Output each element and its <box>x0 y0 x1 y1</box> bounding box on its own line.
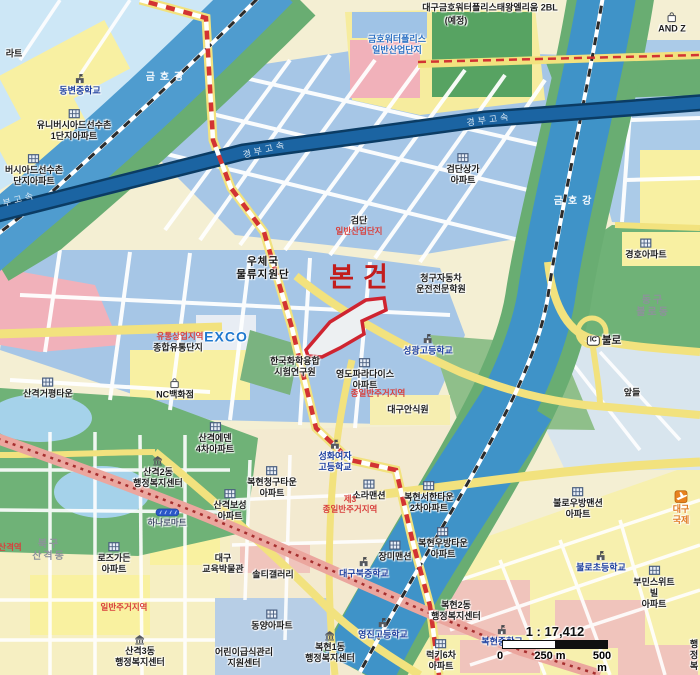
geumho-river-label-east: 금호강 <box>554 196 597 208</box>
shop-icon <box>666 12 679 23</box>
daegu-ansikwon-text: 대구안식원 <box>387 405 428 416</box>
seonggwang-high-school: 성광고등학교 <box>403 334 453 357</box>
ktr-institute: 한국화학융합 시험연구원 <box>270 356 320 378</box>
distribution-commercial-zone: 유통상업지역 <box>157 331 204 341</box>
residential-zone-class3-text: 제3 종일반주거지역 <box>323 494 378 514</box>
bokhyeon-seohan-town-2-apt: 복현서한타운 2차아파트 <box>404 480 454 514</box>
daegu-buk-middle-school-text: 대구북중학교 <box>339 569 389 580</box>
waterpolis-industrial-complex: 금호워터폴리스 일반산업단지 <box>368 34 426 56</box>
residential-zone-west: 일반주거지역 <box>101 602 148 612</box>
scale-ratio: 1 : 17,412 <box>492 624 618 639</box>
yeongdo-paradise-apt: 영도파라다이스 아파트 <box>336 357 394 391</box>
bokhyeon-ubang-town-apt: 복현우방타운 아파트 <box>418 526 468 560</box>
post-office-logistics: 우체국 물류지원단 <box>236 255 289 280</box>
apt-label-fragment-text: 라트 <box>6 49 23 60</box>
daegu-international-airport: 대구국제 <box>672 490 691 526</box>
sangyeok-eden-4-apt-text: 산격에덴 4차아파트 <box>196 433 234 455</box>
dongyang-apt-text: 동양아파트 <box>251 621 292 632</box>
yeongjin-high-school: 영진고등학교 <box>358 618 408 641</box>
bullo-elementary-school: 불로초등학교 <box>576 551 626 574</box>
seonggwang-high-school-text: 성광고등학교 <box>403 346 453 357</box>
chunggu-driving-school-text: 청구자동차 운전전문학원 <box>416 273 466 295</box>
solti-gallery-text: 솔티갤러리 <box>252 570 293 581</box>
daegu-buk-middle-school: 대구북중학교 <box>339 557 389 580</box>
sangyeok-geopyeong-town-text: 산격거평타운 <box>23 389 73 400</box>
map-scale: 1 : 17,412 0 250 m 500 m <box>492 624 618 664</box>
apt-icon <box>363 479 376 490</box>
apt-icon <box>437 526 450 537</box>
scale-bar <box>502 640 608 649</box>
exco-text: EXCO <box>204 329 248 346</box>
sangyeok-3-dong-admin-center: 산격3동 행정복지센터 <box>115 634 165 668</box>
apdeul-field-text: 앞들 <box>624 388 641 399</box>
air-icon <box>675 490 688 503</box>
sangyeok-3-dong-admin-center-text: 산격3동 행정복지센터 <box>115 646 165 668</box>
scale-tick-250: 250 m <box>534 650 565 662</box>
waterpolis-banner-line1-text: 대구금호워터폴리스태왕엘리움 2BL <box>422 3 557 14</box>
geumho-river-label-west: 금호강 <box>146 72 189 84</box>
and-z-store: AND Z <box>658 12 686 35</box>
gyeongbu-expressway-label-2: 경부고속 <box>466 112 512 129</box>
geomdan-sangga-apt: 검단상가 아파트 <box>446 152 479 186</box>
bullo-ubang-mansion-apt-text: 불로우방맨션 아파트 <box>553 498 603 520</box>
scale-tick-500: 500 m <box>593 650 611 674</box>
universiade-village-2-apt: 버시아드선수촌 단지아파트 <box>5 153 63 187</box>
apt-icon <box>224 488 237 499</box>
apt-icon <box>359 357 372 368</box>
apdeul-field: 앞들 <box>624 388 641 399</box>
geomdan-sangga-apt-text: 검단상가 아파트 <box>446 164 479 186</box>
bokhyeon-chunggu-town-apt: 복현청구타운 아파트 <box>247 465 297 499</box>
children-food-support-center-text: 어린이급식관리 지원센터 <box>215 647 273 669</box>
bullo-elementary-school-text: 불로초등학교 <box>576 563 626 574</box>
apt-icon <box>640 238 653 249</box>
school-icon <box>358 557 371 568</box>
waterpolis-industrial-complex-text: 금호워터폴리스 일반산업단지 <box>368 34 426 56</box>
apt-icon <box>648 565 661 576</box>
bokhyeon-ubang-town-apt-text: 복현우방타운 아파트 <box>418 538 468 560</box>
gyeongho-apt-text: 경호아파트 <box>625 250 666 261</box>
lucky-6-apt: 럭키6차 아파트 <box>426 638 456 672</box>
daegu-education-museum-text: 대구 교육박물관 <box>202 553 243 575</box>
bokhyeon-1-dong-admin-center-text: 복현1동 행정복지센터 <box>305 642 355 664</box>
school-icon <box>329 439 342 450</box>
shop-icon <box>169 378 182 389</box>
mart-icon <box>155 508 179 516</box>
dongbyeon-middle-school-text: 동변중학교 <box>59 86 100 97</box>
chunggu-driving-school: 청구자동차 운전전문학원 <box>416 273 466 295</box>
apt-icon <box>42 377 55 388</box>
sangyeok-geopyeong-town: 산격거평타운 <box>23 377 73 400</box>
residential-zone-center: 종일반주거지역 <box>351 388 406 398</box>
bumin-sweetville-apt: 부민스위트빌 아파트 <box>631 565 677 609</box>
gyeongbu-expressway-label-3-text: 경부고속 <box>0 190 37 212</box>
gov-icon <box>324 630 337 641</box>
distribution-complex-text: 종합유통단지 <box>153 343 203 354</box>
distribution-complex: 종합유통단지 <box>153 343 203 354</box>
gov-icon <box>152 455 165 466</box>
distribution-commercial-zone-text: 유통상업지역 <box>157 331 204 341</box>
map-labels: 라트동변중학교유니버시아드선수촌 1단지아파트버시아드선수촌 단지아파트금호강금… <box>0 0 700 675</box>
solti-gallery: 솔티갤러리 <box>252 570 293 581</box>
lucky-6-apt-text: 럭키6차 아파트 <box>426 650 456 672</box>
daegu-international-airport-text: 대구국제 <box>672 504 691 526</box>
exco: EXCO <box>204 329 248 346</box>
gyeongho-apt: 경호아파트 <box>625 238 666 261</box>
apt-icon <box>389 540 402 551</box>
nc-department-store: NC백화점 <box>156 378 194 401</box>
dongbyeon-middle-school: 동변중학교 <box>59 74 100 97</box>
waterpolis-banner-line2-text: (예정) <box>445 16 468 27</box>
gyeongbu-expressway-label-2-text: 경부고속 <box>466 112 512 129</box>
residential-zone-west-text: 일반주거지역 <box>101 602 148 612</box>
sangyeok-2-dong-admin-center-text: 산격2동 행정복지센터 <box>133 467 183 489</box>
apt-icon <box>423 480 436 491</box>
bokhyeon-chunggu-town-apt-text: 복현청구타운 아파트 <box>247 477 297 499</box>
daegu-ansikwon: 대구안식원 <box>387 405 428 416</box>
ktr-institute-text: 한국화학융합 시험연구원 <box>270 356 320 378</box>
apt-icon <box>28 153 41 164</box>
gyeongbu-expressway-label-1-text: 경부고속 <box>242 139 288 160</box>
scale-ticks: 0 250 m 500 m <box>492 650 618 664</box>
school-icon <box>422 334 435 345</box>
apt-icon <box>457 152 470 163</box>
subject-property-label-text: 본건 <box>329 265 397 292</box>
apt-icon <box>108 541 121 552</box>
geomdan-name: 검단 <box>351 216 368 227</box>
universiade-village-2-apt-text: 버시아드선수촌 단지아파트 <box>5 165 63 187</box>
apt-icon <box>68 108 81 119</box>
apt-icon <box>266 609 279 620</box>
school-icon <box>595 551 608 562</box>
universiade-village-1-apt: 유니버시아드선수촌 1단지아파트 <box>37 108 112 142</box>
bullo-ubang-mansion-apt: 불로우방맨션 아파트 <box>553 486 603 520</box>
residential-zone-center-text: 종일반주거지역 <box>351 388 406 398</box>
buk-gu-sangyeok-dong: 북구 산격동 <box>32 539 66 563</box>
children-food-support-center: 어린이급식관리 지원센터 <box>215 647 273 669</box>
sangyeok-boseong-apt-text: 산격보성 아파트 <box>213 500 246 522</box>
geomdan-industrial-zone-text: 일반산업단지 <box>336 226 383 236</box>
sangyeok-boseong-apt: 산격보성 아파트 <box>213 488 246 522</box>
geumho-river-label-east-text: 금호강 <box>554 196 597 208</box>
bokhyeon-2-dong-admin-center: 복현2동 행정복지센터 <box>431 600 481 622</box>
admin-center-fragment: 행정복 <box>690 639 698 671</box>
location-map: 라트동변중학교유니버시아드선수촌 1단지아파트버시아드선수촌 단지아파트금호강금… <box>0 0 700 675</box>
apt-icon <box>434 638 447 649</box>
waterpolis-banner-line1: 대구금호워터폴리스태왕엘리움 2BL <box>422 3 557 14</box>
sangyeok-2-dong-admin-center: 산격2동 행정복지센터 <box>133 455 183 489</box>
sangyeok-eden-4-apt: 산격에덴 4차아파트 <box>196 421 234 455</box>
bokhyeon-seohan-town-2-apt-text: 복현서한타운 2차아파트 <box>404 492 454 514</box>
daegu-education-museum: 대구 교육박물관 <box>202 553 243 575</box>
dong-gu-bullo-dong-text: 동구 불로동 <box>636 295 670 319</box>
subject-property-label: 본건 <box>329 265 397 292</box>
seonghwa-girls-high-school-text: 성화여자 고등학교 <box>318 451 351 473</box>
rose-garden-apt: 로즈가든 아파트 <box>97 541 130 575</box>
school-icon <box>377 618 390 629</box>
bokhyeon-1-dong-admin-center: 복현1동 행정복지센터 <box>305 630 355 664</box>
dongyang-apt: 동양아파트 <box>251 609 292 632</box>
apt-label-fragment: 라트 <box>6 49 23 60</box>
apt-icon <box>572 486 585 497</box>
gyeongbu-expressway-label-3: 경부고속 <box>0 190 37 212</box>
waterpolis-banner-line2: (예정) <box>445 16 468 27</box>
school-icon <box>74 74 87 85</box>
dong-gu-bullo-dong: 동구 불로동 <box>636 295 670 319</box>
apt-icon <box>208 421 221 432</box>
bullo-ic: IC불로 <box>587 335 621 348</box>
geomdan-name-text: 검단 <box>351 216 368 227</box>
gov-icon <box>134 634 147 645</box>
rose-garden-apt-text: 로즈가든 아파트 <box>97 553 130 575</box>
bullo-ic-text: 불로 <box>602 335 621 348</box>
admin-center-fragment-text: 행정복 <box>690 639 698 671</box>
bumin-sweetville-apt-text: 부민스위트빌 아파트 <box>631 577 677 609</box>
yeongjin-high-school-text: 영진고등학교 <box>358 630 408 641</box>
ic-badge: IC <box>587 336 600 346</box>
bokhyeon-2-dong-admin-center-text: 복현2동 행정복지센터 <box>431 600 481 622</box>
nc-department-store-text: NC백화점 <box>156 390 194 401</box>
post-office-logistics-text: 우체국 물류지원단 <box>236 255 289 280</box>
sangyeok-station: 산격역 <box>0 542 22 552</box>
gyeongbu-expressway-label-1: 경부고속 <box>242 139 288 160</box>
geumho-river-label-west-text: 금호강 <box>146 72 189 84</box>
scale-tick-0: 0 <box>497 650 503 662</box>
universiade-village-1-apt-text: 유니버시아드선수촌 1단지아파트 <box>37 120 112 142</box>
hanaro-mart-text: 하나로마트 <box>147 517 186 527</box>
sangyeok-station-text: 산격역 <box>0 542 22 552</box>
residential-zone-class3: 제3 종일반주거지역 <box>323 494 378 514</box>
geomdan-industrial-zone: 일반산업단지 <box>336 226 383 236</box>
apt-icon <box>266 465 279 476</box>
buk-gu-sangyeok-dong-text: 북구 산격동 <box>32 539 66 563</box>
seonghwa-girls-high-school: 성화여자 고등학교 <box>318 439 351 473</box>
hanaro-mart: 하나로마트 <box>147 508 186 527</box>
and-z-store-text: AND Z <box>658 24 686 35</box>
